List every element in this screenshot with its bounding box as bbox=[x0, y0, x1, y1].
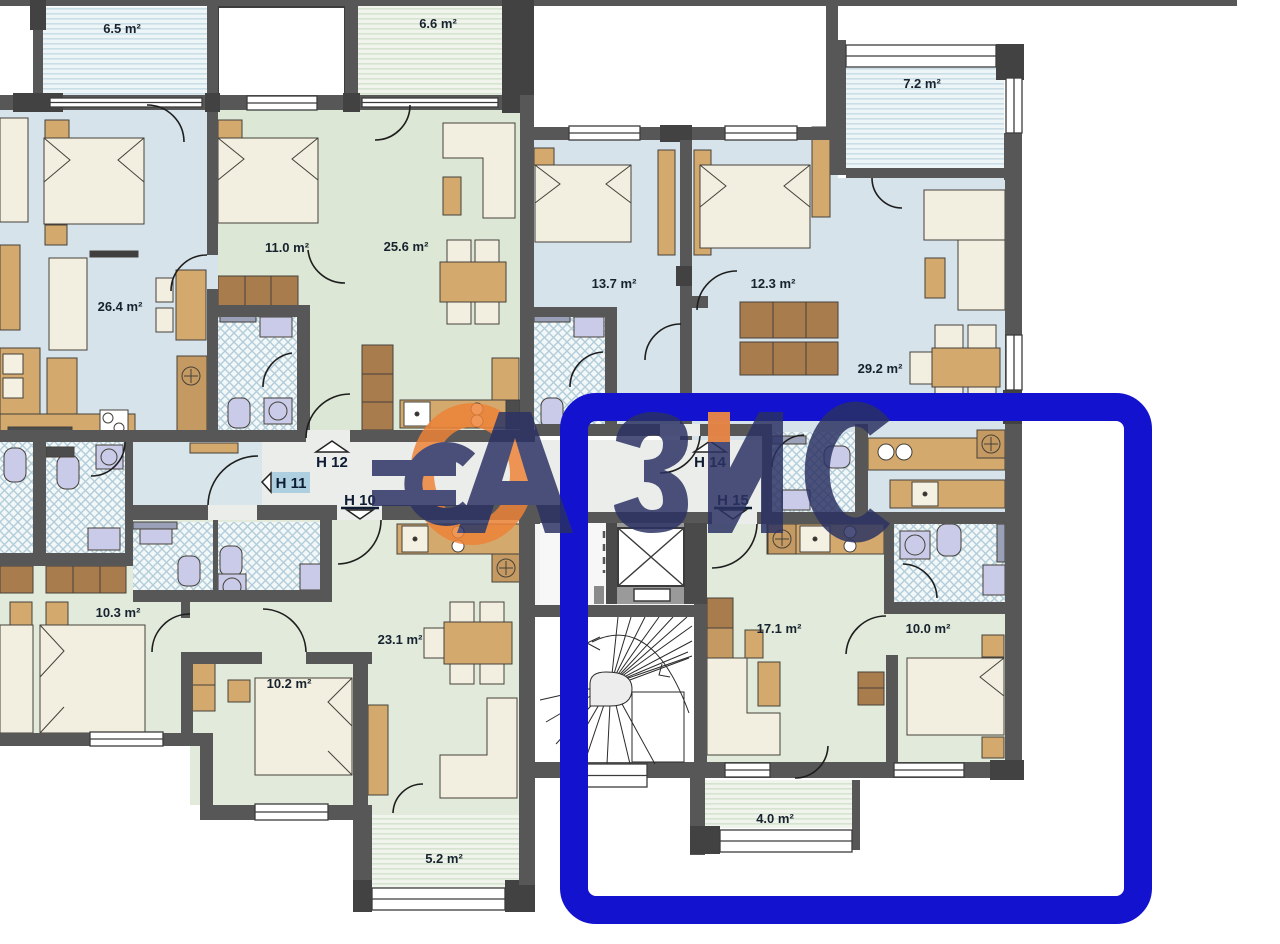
svg-text:5.2 m²: 5.2 m² bbox=[425, 851, 463, 866]
svg-text:H 12: H 12 bbox=[316, 454, 348, 471]
svg-text:4.0 m²: 4.0 m² bbox=[756, 811, 794, 826]
svg-text:11.0 m²: 11.0 m² bbox=[265, 240, 310, 255]
svg-text:26.4 m²: 26.4 m² bbox=[98, 299, 143, 314]
svg-text:H 10: H 10 bbox=[344, 492, 376, 509]
svg-text:6.6 m²: 6.6 m² bbox=[419, 16, 457, 31]
svg-text:10.0 m²: 10.0 m² bbox=[906, 621, 951, 636]
svg-text:H 11: H 11 bbox=[276, 475, 307, 492]
svg-text:25.6 m²: 25.6 m² bbox=[384, 239, 429, 254]
svg-text:10.3 m²: 10.3 m² bbox=[96, 605, 141, 620]
svg-text:10.2 m²: 10.2 m² bbox=[267, 676, 312, 691]
svg-text:6.5 m²: 6.5 m² bbox=[103, 21, 141, 36]
svg-text:29.2 m²: 29.2 m² bbox=[858, 361, 903, 376]
svg-text:7.2 m²: 7.2 m² bbox=[903, 76, 941, 91]
svg-text:17.1 m²: 17.1 m² bbox=[757, 621, 802, 636]
svg-text:23.1 m²: 23.1 m² bbox=[378, 632, 423, 647]
svg-text:12.3 m²: 12.3 m² bbox=[751, 276, 796, 291]
svg-text:13.7 m²: 13.7 m² bbox=[592, 276, 637, 291]
